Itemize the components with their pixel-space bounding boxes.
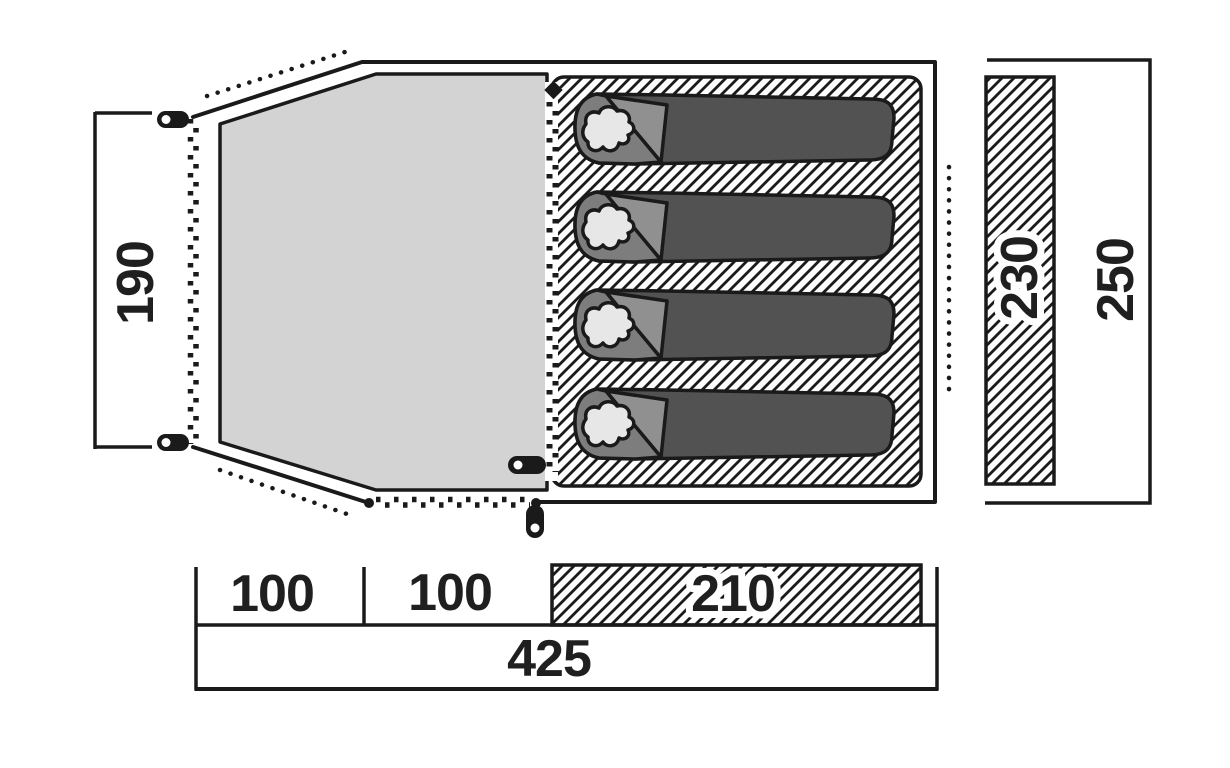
dim-outer-width-label: 250: [1087, 238, 1145, 322]
dim-porch-section-2-label: 100: [408, 564, 492, 622]
sleeping-bag-1: [575, 94, 894, 164]
sleeping-bag-2: [575, 192, 894, 262]
sleeping-bag-3: [575, 290, 894, 360]
door-toggle-peg-icon: [508, 456, 546, 474]
tent-floorplan-page: 190 230 250 100 100 210 425: [0, 0, 1230, 768]
porch-groundsheet: [220, 74, 547, 490]
dim-porch-section-1-label: 100: [230, 565, 314, 623]
tent-peg-bottom-center-icon: [526, 505, 544, 538]
dim-inner-width: 230: [986, 77, 1054, 484]
dim-inner-width-label: 230: [991, 236, 1049, 320]
tent-peg-top-left-icon: [95, 111, 189, 128]
dim-porch-width-label: 190: [107, 241, 165, 325]
tent-floorplan-diagram: 190 230 250 100 100 210 425: [0, 0, 1230, 768]
left-door-zipper-icon: [191, 119, 197, 444]
sleeping-bag-4: [575, 389, 894, 459]
bottom-door-zipper-icon: [376, 500, 530, 506]
dim-length-table: 100 100 210 425: [195, 564, 939, 690]
dim-inner-length-label: 210: [691, 565, 775, 623]
dim-total-length-label: 425: [507, 630, 591, 688]
dim-porch-width: 190: [95, 112, 165, 449]
zipper-end-dot: [364, 498, 374, 508]
tent-peg-bottom-left-icon: [95, 434, 189, 451]
